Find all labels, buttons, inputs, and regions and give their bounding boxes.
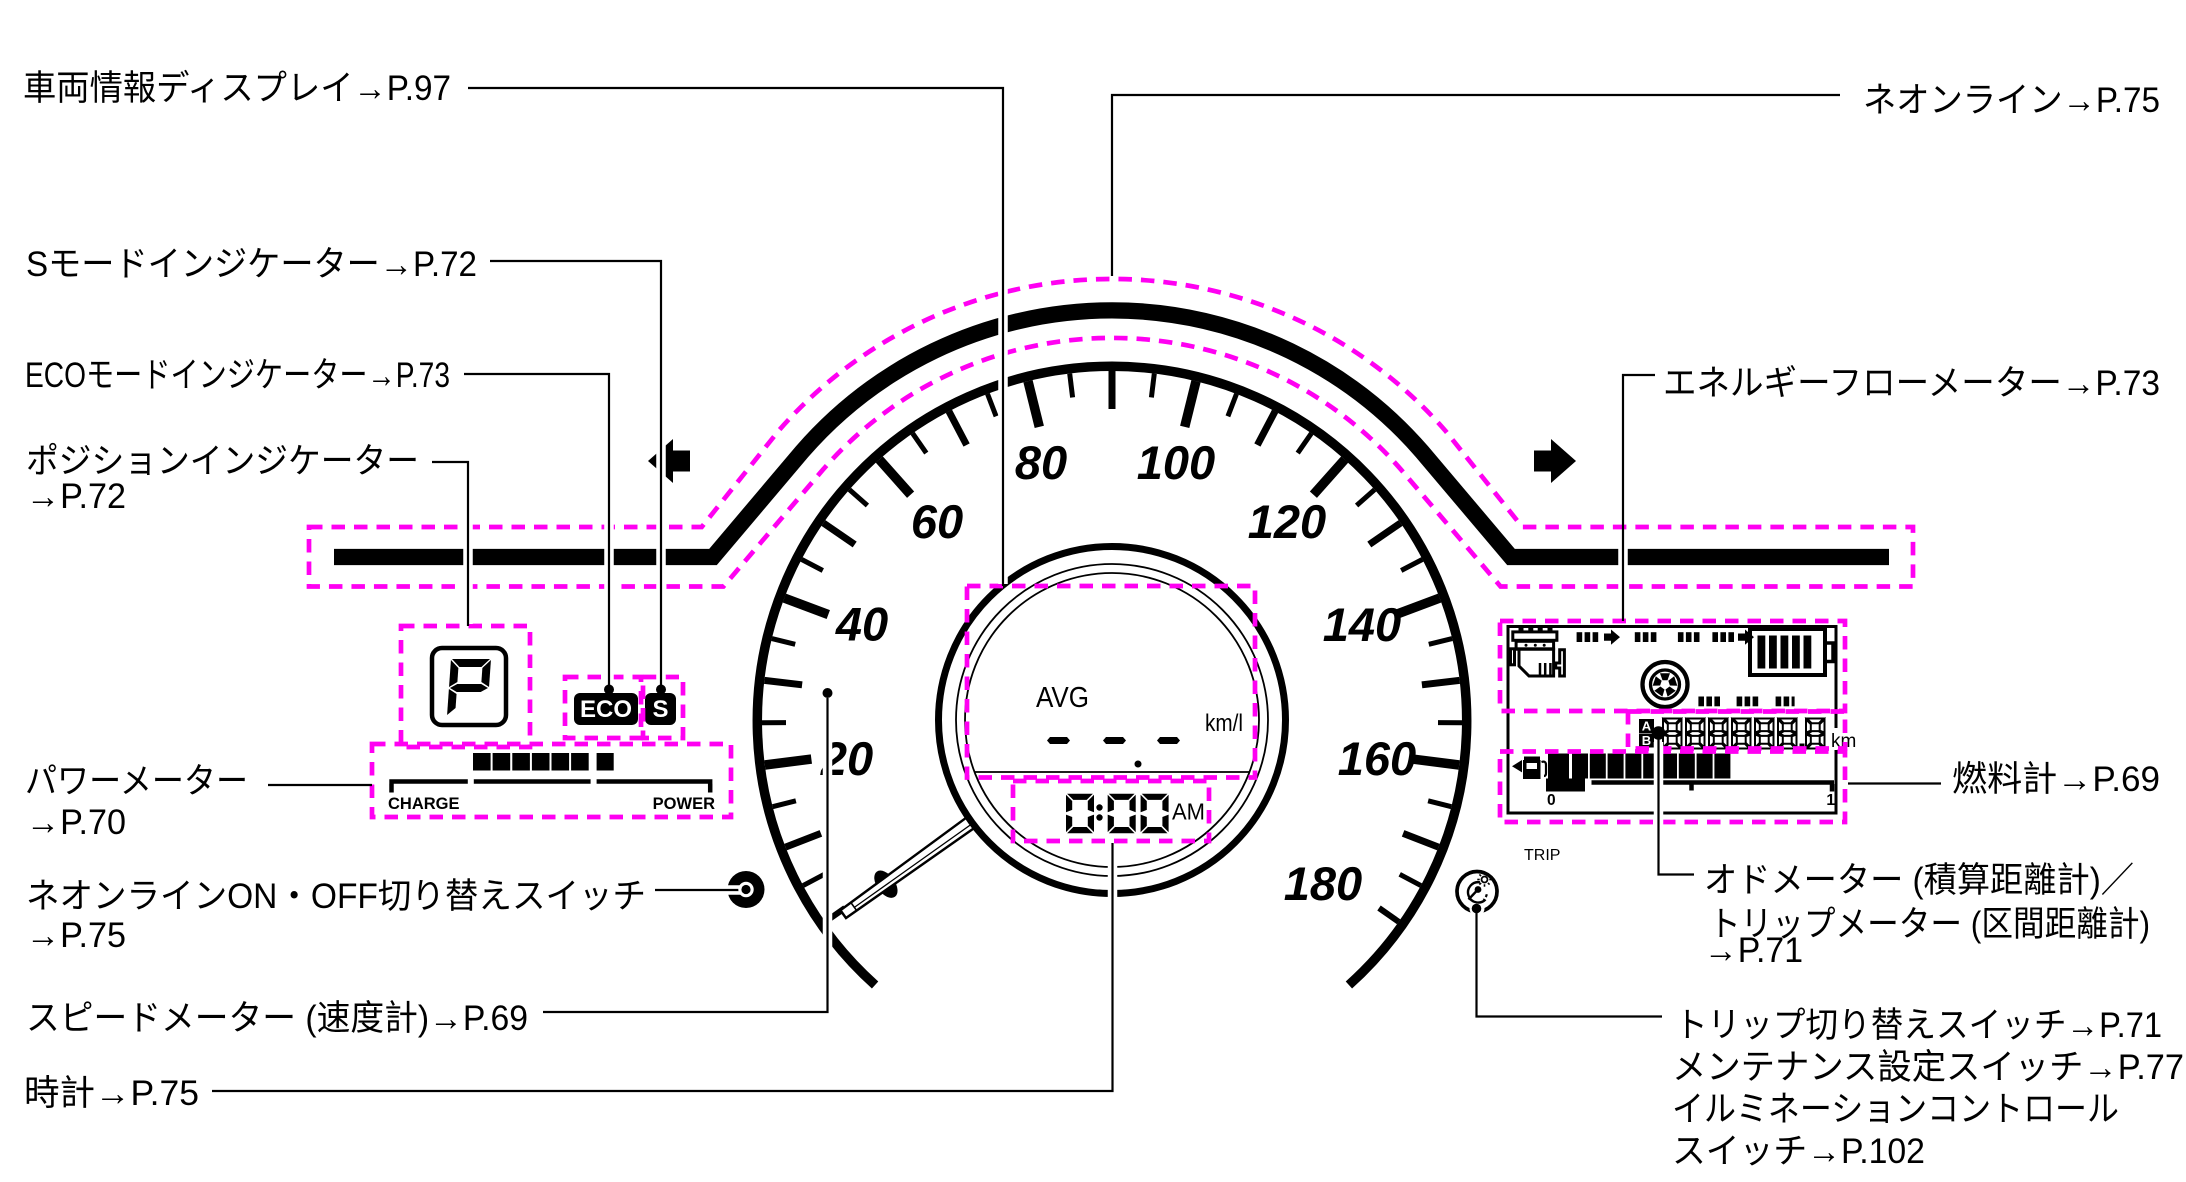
svg-text:スピードメーター (速度計)→P.69: スピードメーター (速度計)→P.69	[26, 999, 528, 1038]
svg-text:160: 160	[1338, 732, 1416, 785]
svg-text:80: 80	[1015, 436, 1067, 489]
svg-text:60: 60	[911, 495, 963, 548]
svg-text:100: 100	[1137, 436, 1215, 489]
svg-text:0: 0	[1547, 792, 1556, 809]
svg-text:140: 140	[1323, 598, 1401, 651]
svg-text:120: 120	[1248, 495, 1326, 548]
svg-text:→P.72: →P.72	[26, 477, 126, 516]
svg-text:トリップ切り替えスイッチ→P.71: トリップ切り替えスイッチ→P.71	[1675, 1006, 2162, 1045]
svg-text:→P.71: →P.71	[1704, 931, 1803, 970]
svg-text:メンテナンス設定スイッチ→P.77: メンテナンス設定スイッチ→P.77	[1672, 1048, 2184, 1087]
svg-text:ネオンライン→P.75: ネオンライン→P.75	[1863, 81, 2160, 120]
svg-text:AM: AM	[1172, 799, 1205, 825]
svg-text:時計→P.75: 時計→P.75	[24, 1074, 199, 1113]
svg-text:POWER: POWER	[653, 795, 715, 813]
svg-text:ECOモードインジケーター→P.73: ECOモードインジケーター→P.73	[25, 356, 450, 395]
svg-text:オドメーター (積算距離計)／: オドメーター (積算距離計)／	[1704, 861, 2134, 900]
svg-text:エネルギーフローメーター→P.73: エネルギーフローメーター→P.73	[1663, 364, 2160, 403]
svg-text:車両情報ディスプレイ→P.97: 車両情報ディスプレイ→P.97	[23, 69, 451, 108]
svg-text:40: 40	[835, 597, 888, 650]
svg-text:Sモードインジケーター→P.72: Sモードインジケーター→P.72	[26, 245, 477, 284]
svg-text:S: S	[652, 696, 668, 723]
svg-text:パワーメーター: パワーメーター	[25, 762, 248, 801]
svg-text:燃料計→P.69: 燃料計→P.69	[1952, 760, 2160, 799]
svg-text:B: B	[1642, 733, 1651, 748]
svg-text:スイッチ→P.102: スイッチ→P.102	[1672, 1132, 1925, 1171]
svg-text:CHARGE: CHARGE	[388, 795, 460, 813]
svg-text:ポジションインジケーター: ポジションインジケーター	[26, 442, 419, 481]
svg-text:km/l: km/l	[1205, 710, 1243, 737]
svg-text:180: 180	[1284, 857, 1362, 910]
svg-text:ECO: ECO	[580, 696, 632, 723]
svg-text:→P.70: →P.70	[26, 803, 126, 842]
svg-text:TRIP: TRIP	[1524, 847, 1560, 864]
svg-text:A: A	[1642, 719, 1652, 734]
svg-text:1: 1	[1826, 792, 1835, 809]
svg-text:AVG: AVG	[1036, 682, 1089, 714]
svg-text:イルミネーションコントロール: イルミネーションコントロール	[1672, 1090, 2119, 1129]
svg-text:→P.75: →P.75	[26, 916, 126, 955]
svg-text:ネオンラインON・OFF切り替えスイッチ: ネオンラインON・OFF切り替えスイッチ	[26, 877, 646, 916]
